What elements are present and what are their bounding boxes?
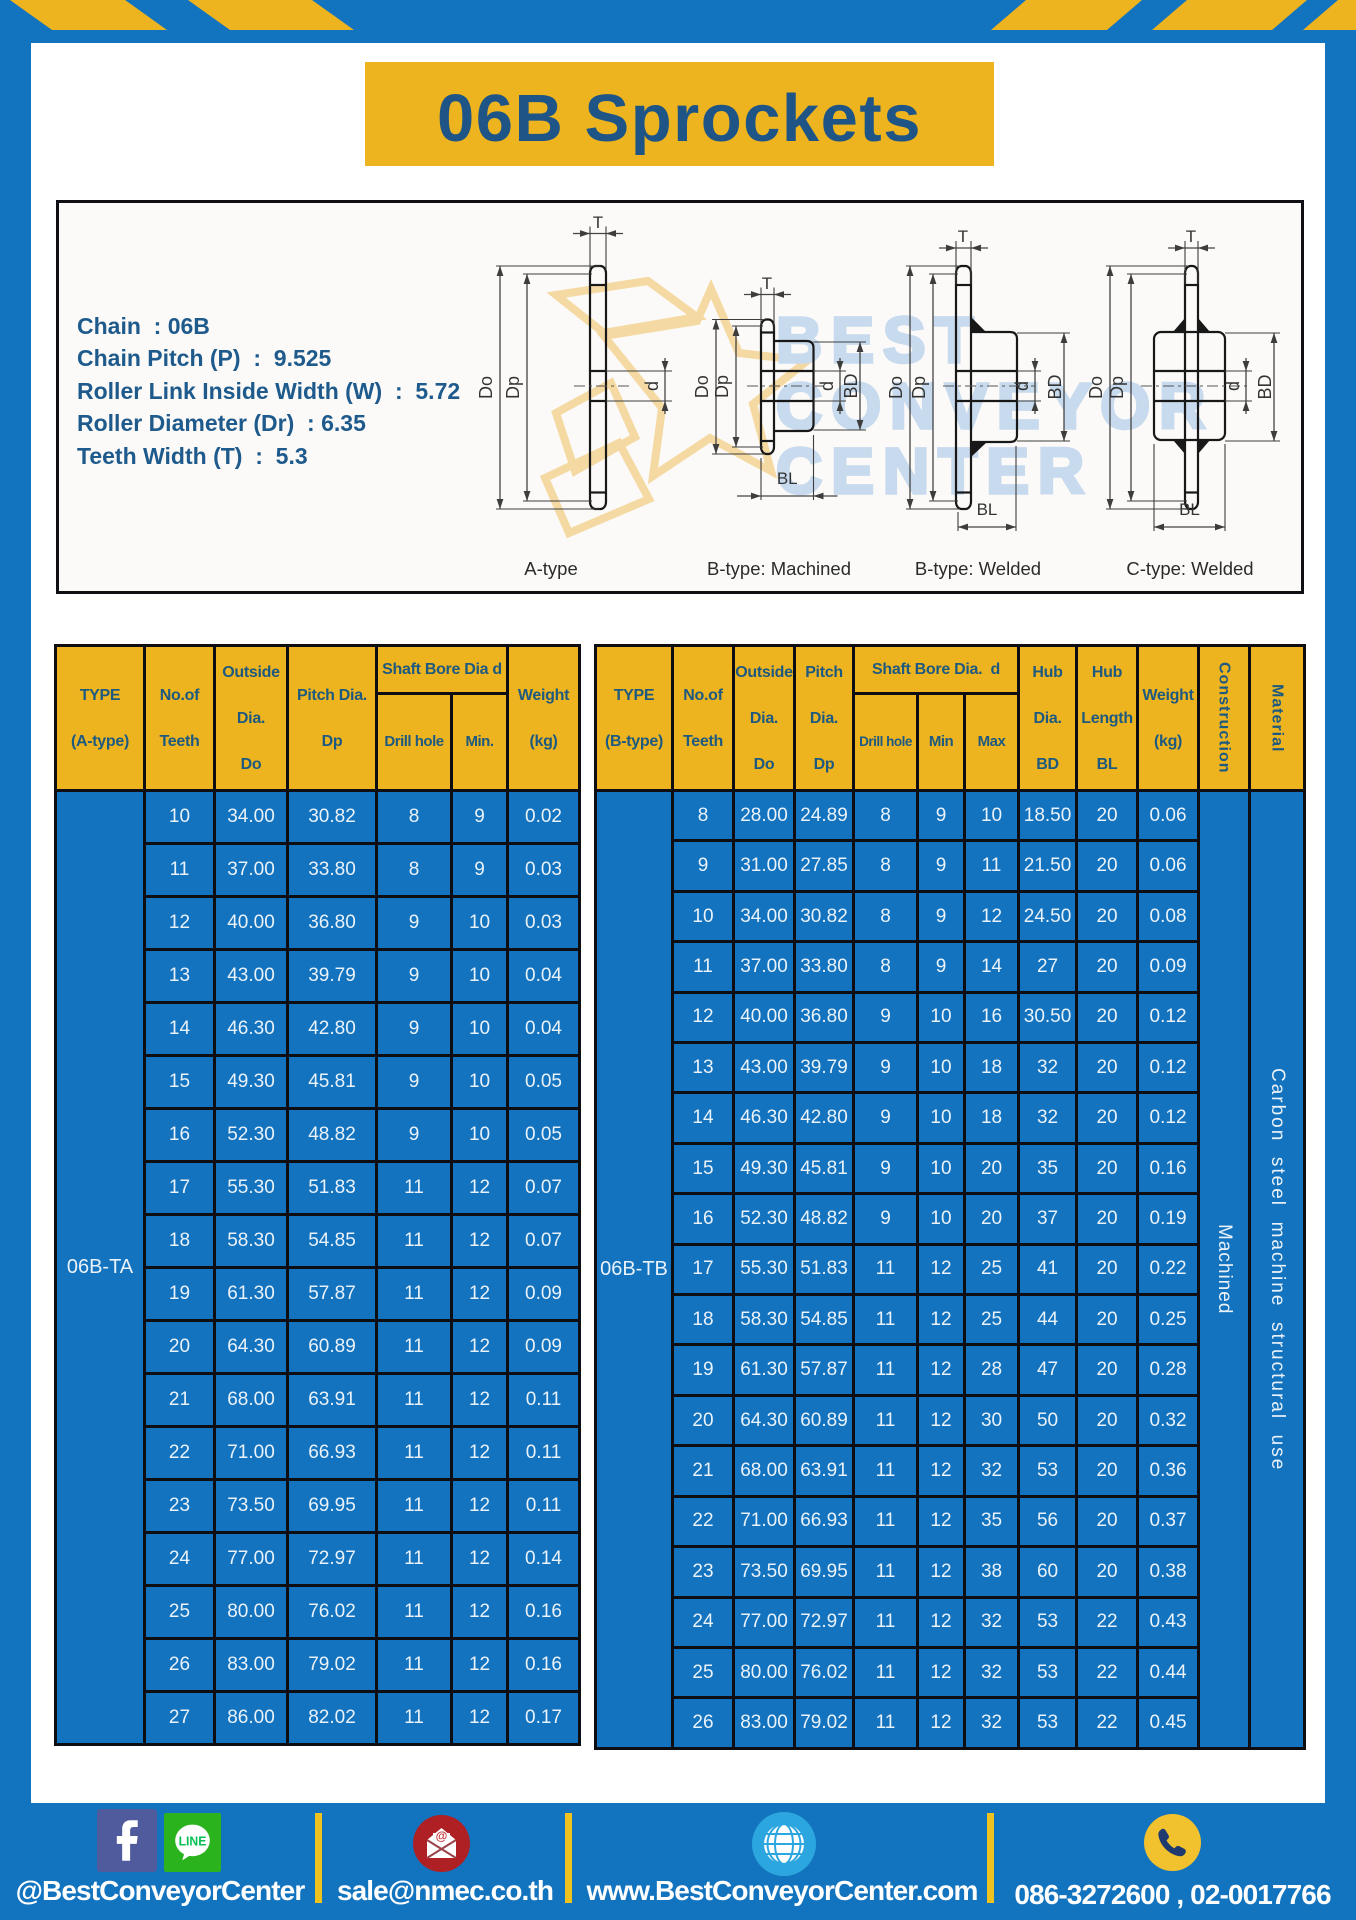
svg-text:Dp: Dp: [503, 376, 523, 399]
svg-text:@: @: [436, 1829, 448, 1843]
svg-text:A-type: A-type: [524, 558, 577, 579]
svg-text:Do: Do: [886, 376, 906, 399]
svg-text:Do: Do: [476, 376, 496, 399]
svg-text:T: T: [958, 227, 968, 246]
svg-text:Do: Do: [692, 375, 712, 398]
svg-text:T: T: [593, 213, 603, 232]
svg-text:C-type: Welded: C-type: Welded: [1126, 558, 1253, 579]
svg-text:Do: Do: [1086, 376, 1106, 399]
svg-text:LINE: LINE: [179, 1834, 207, 1848]
svg-text:BD: BD: [1045, 374, 1065, 399]
svg-text:d: d: [1012, 381, 1032, 391]
svg-text:Dp: Dp: [909, 376, 929, 399]
svg-text:d: d: [817, 381, 837, 391]
svg-text:BL: BL: [777, 469, 798, 488]
svg-text:T: T: [762, 274, 772, 293]
svg-text:BL: BL: [977, 500, 998, 519]
svg-text:BD: BD: [841, 373, 861, 398]
svg-text:Dp: Dp: [712, 375, 732, 398]
svg-text:BD: BD: [1255, 374, 1275, 399]
svg-text:B-type: Welded: B-type: Welded: [915, 558, 1041, 579]
svg-text:d: d: [642, 381, 662, 391]
svg-text:BL: BL: [1179, 500, 1200, 519]
svg-text:T: T: [1186, 227, 1196, 246]
svg-text:Dp: Dp: [1107, 376, 1127, 399]
svg-text:d: d: [1223, 381, 1243, 391]
svg-text:B-type: Machined: B-type: Machined: [707, 558, 851, 579]
